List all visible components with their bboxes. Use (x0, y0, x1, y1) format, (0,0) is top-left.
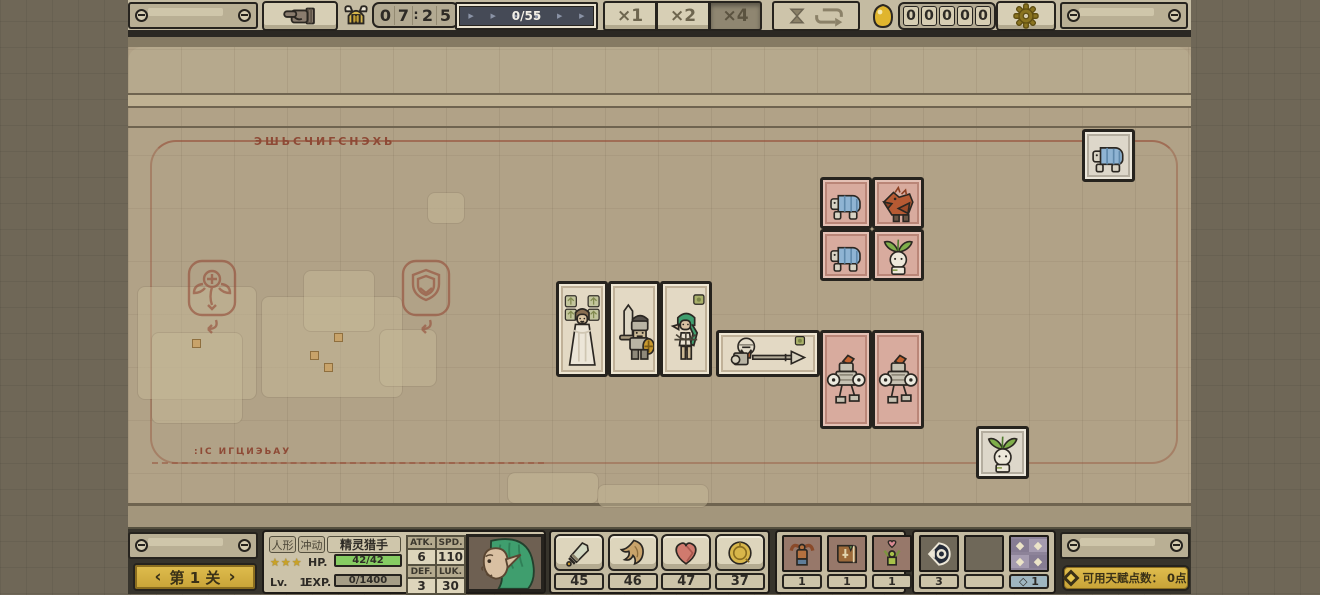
empty-slot[interactable] (964, 535, 1004, 572)
scroll-knob-icon[interactable] (238, 539, 251, 552)
game-stage: 0 7 : 2 5 ▶▶▶ ▶▶▶ 0/55 ×1×2×4 (128, 0, 1191, 594)
trait-tag: 冲动 (298, 536, 325, 553)
coin-resource-button[interactable] (715, 534, 765, 571)
rune-text-top: ЭШЬСЧИГСНЭХЬ (254, 135, 395, 148)
timer-digit: 2 (419, 6, 437, 25)
stat-value: 6 (407, 549, 436, 565)
coin-ring-icon (725, 538, 755, 568)
stat-value: 3 (407, 578, 436, 594)
consumable-item: 1 (872, 535, 912, 589)
hourglass-icon (788, 5, 806, 27)
eye-crest-icon (924, 540, 954, 568)
unit-card-sprout[interactable] (976, 426, 1029, 479)
resource-count: 47 (661, 573, 711, 590)
star-rating: ★★★ (270, 556, 303, 569)
gold-digit: 0 (903, 6, 919, 26)
item-count: 1 (782, 574, 822, 589)
board-stripe-band (128, 95, 1191, 106)
unit-card-dragon[interactable] (872, 177, 924, 229)
resource-count: 37 (715, 573, 765, 590)
badge-count: ◇ 1 (1009, 574, 1049, 589)
eye-crest-button[interactable] (919, 535, 959, 572)
hand-cursor-button[interactable] (262, 1, 338, 31)
heal-emblem-icon (186, 258, 238, 336)
timer-digit: 7 (395, 6, 413, 25)
map-dot (334, 333, 343, 342)
badge-item: 3 (919, 535, 959, 589)
resource-count: 45 (554, 573, 604, 590)
stat-label: SPD. (436, 536, 465, 549)
hp-bar: 42/42 (334, 554, 402, 567)
rune-text-bottom: :IС ИГЦИЭЬАУ (194, 447, 291, 457)
heart-resource-button[interactable] (661, 534, 711, 571)
top-left-scrollbar[interactable] (128, 2, 258, 29)
timer-digit: 0 (377, 6, 395, 25)
board-stripe-line (128, 126, 1191, 128)
map-blob (598, 485, 708, 507)
strength-item-button[interactable] (782, 535, 822, 572)
board-upper-band (128, 37, 1191, 47)
scroll-knob-icon[interactable] (135, 539, 148, 552)
gem-diamond-icon: ◆ (1029, 555, 1047, 568)
race-tag: 人形 (269, 536, 296, 553)
attack-resource-button[interactable] (554, 534, 604, 571)
item-count: 1 (827, 574, 867, 589)
unit-card-robot[interactable] (872, 330, 924, 429)
timer-digit: 5 (437, 6, 454, 25)
bottombar: ‹ 第 1 关 › 人形 冲动 精灵猎手 ★★★ Lv. 1 HP. 42/42… (128, 527, 1191, 594)
level-row: Lv. 1 (270, 576, 307, 589)
unit-card-sprout[interactable] (872, 229, 924, 281)
resource-heart: 47 (661, 534, 712, 590)
unit-card-knight[interactable] (608, 281, 660, 377)
cheer-item-button[interactable] (872, 535, 912, 572)
settings-button[interactable] (996, 1, 1056, 31)
speed-x4-button[interactable]: ×4 (709, 1, 762, 31)
talent-points-button[interactable]: 可用天赋点数： 0点 (1062, 565, 1190, 591)
stage-label: 第 1 关 (170, 567, 221, 588)
bottom-right-scrollbar[interactable] (1060, 532, 1190, 559)
resource-coin: 37 (715, 534, 766, 590)
map-blob (508, 473, 598, 503)
badge-item (964, 535, 1004, 589)
deploy-zone-dashed-line (152, 462, 544, 464)
board-stripe-line (128, 106, 1191, 108)
scroll-knob-icon[interactable] (1170, 539, 1183, 552)
screen: 0 7 : 2 5 ▶▶▶ ▶▶▶ 0/55 ×1×2×4 (0, 0, 1320, 594)
unit-card-turtle[interactable] (820, 177, 872, 229)
item-count: 1 (872, 574, 912, 589)
timer-display: 0 7 : 2 5 (372, 2, 459, 28)
topbar: 0 7 : 2 5 ▶▶▶ ▶▶▶ 0/55 ×1×2×4 (128, 0, 1191, 33)
shield-emblem-icon (400, 258, 452, 336)
stage-banner: ‹ 第 1 关 › (133, 563, 257, 591)
wave-progress-text: 0/55 (460, 9, 593, 23)
gold-counter: 00000 (872, 2, 996, 30)
scroll-knob-icon[interactable] (1168, 9, 1181, 22)
badge-count (964, 574, 1004, 589)
gold-digit: 0 (939, 6, 955, 26)
unit-card-robot[interactable] (820, 330, 872, 429)
scrollbar-highlight (148, 8, 224, 16)
gem-diamond-icon: ◆ (1029, 539, 1047, 552)
scrollbar-highlight (1079, 8, 1153, 16)
badge-item: ◆ ◆ ◆ ◆ ◇ 1 (1009, 535, 1049, 589)
stat-value: 110 (436, 549, 465, 565)
stat-label: LUK. (436, 565, 465, 578)
game-board[interactable]: ЭШЬСЧИГСНЭХЬ :IС ИГЦИЭЬАУ (128, 33, 1191, 527)
gold-digit: 0 (975, 6, 991, 26)
wave-progress-bar: ▶▶▶ ▶▶▶ 0/55 (455, 2, 598, 30)
talent-points-label: 可用天赋点数： 0点 (1082, 570, 1186, 586)
exp-label: EXP. (305, 576, 331, 589)
banner-right-chevron: › (228, 569, 235, 586)
stat-label: ATK. (407, 536, 436, 549)
exp-value: 0/1400 (349, 575, 387, 586)
map-dot (192, 339, 201, 348)
gold-coin-icon (872, 3, 894, 29)
gold-digits: 00000 (898, 2, 996, 30)
wing-resource-button[interactable] (608, 534, 658, 571)
badge-count: 3 (919, 574, 959, 589)
speed-x1-button[interactable]: ×1 (603, 1, 656, 31)
repeat-icon (814, 5, 844, 27)
gem-grid-button[interactable]: ◆ ◆ ◆ ◆ (1009, 535, 1049, 572)
gem-diamond-icon: ◆ (1011, 555, 1029, 568)
scroll-knob-icon[interactable] (238, 9, 251, 22)
map-blob (380, 330, 436, 386)
cheer-icon (877, 539, 907, 569)
hand-icon (282, 3, 318, 29)
unit-card-lady[interactable] (556, 281, 608, 377)
consumables-panel: 1 1 (775, 530, 906, 594)
badges-panel: 3 ◆ ◆ ◆ ◆ ◇ 1 (912, 530, 1056, 594)
level-label: Lv. (270, 576, 287, 589)
wave-progress-track: ▶▶▶ ▶▶▶ 0/55 (459, 6, 594, 26)
character-panel[interactable]: 人形 冲动 精灵猎手 ★★★ Lv. 1 HP. 42/42 EXP. 0/14… (262, 530, 546, 594)
hp-value: 42/42 (352, 555, 383, 566)
scroll-knob-icon[interactable] (1067, 9, 1080, 22)
gear-icon (1013, 3, 1039, 29)
resource-wing: 46 (608, 534, 659, 590)
consumable-item: 1 (782, 535, 822, 589)
skill-book-button[interactable] (827, 535, 867, 572)
stat-label: DEF. (407, 565, 436, 578)
map-blob (304, 271, 374, 331)
wait-controls[interactable] (772, 1, 860, 31)
scrollbar-highlight (1080, 538, 1156, 546)
resource-sword: 45 (554, 534, 605, 590)
resource-keys-panel: 45 46 (549, 530, 770, 594)
unit-card-elf[interactable] (660, 281, 712, 377)
board-bottom-band (128, 506, 1191, 527)
helmet-icon (342, 2, 370, 28)
scroll-knob-icon[interactable] (135, 9, 148, 22)
gold-digit: 0 (957, 6, 973, 26)
character-name: 精灵猎手 (327, 536, 401, 553)
heart-icon (671, 538, 701, 568)
resource-count: 46 (608, 573, 658, 590)
talent-diamond-icon (1063, 570, 1080, 587)
wing-icon (618, 538, 648, 568)
sword-icon (564, 538, 594, 568)
scroll-knob-icon[interactable] (1067, 539, 1080, 552)
gem-diamond-icon: ◆ (1011, 539, 1029, 552)
book-icon (832, 539, 862, 569)
gold-digit: 0 (921, 6, 937, 26)
hp-label: HP. (308, 556, 327, 569)
banner-left-chevron: ‹ (155, 569, 162, 586)
stat-value: 30 (436, 578, 465, 594)
speed-buttons: ×1×2×4 (603, 1, 762, 31)
strength-icon (787, 539, 817, 569)
character-portrait[interactable] (466, 534, 544, 592)
map-blob (428, 193, 464, 223)
map-dot (324, 363, 333, 372)
stage-timer: 0 7 : 2 5 (344, 2, 459, 28)
elf-portrait-image (469, 537, 541, 589)
bottom-left-scrollbar[interactable] (128, 532, 258, 559)
exp-bar: 0/1400 (334, 574, 402, 587)
unit-card-turtle[interactable] (820, 229, 872, 281)
speed-x2-button[interactable]: ×2 (656, 1, 709, 31)
map-dot (310, 351, 319, 360)
stats-table: ATK. SPD. 6 110 DEF. LUK. 3 30 (406, 535, 466, 595)
unit-card-lancer[interactable] (716, 330, 820, 377)
unit-card-turtle[interactable] (1082, 129, 1135, 182)
top-right-scrollbar[interactable] (1060, 2, 1188, 29)
scrollbar-highlight (148, 538, 224, 546)
consumable-item: 1 (827, 535, 867, 589)
